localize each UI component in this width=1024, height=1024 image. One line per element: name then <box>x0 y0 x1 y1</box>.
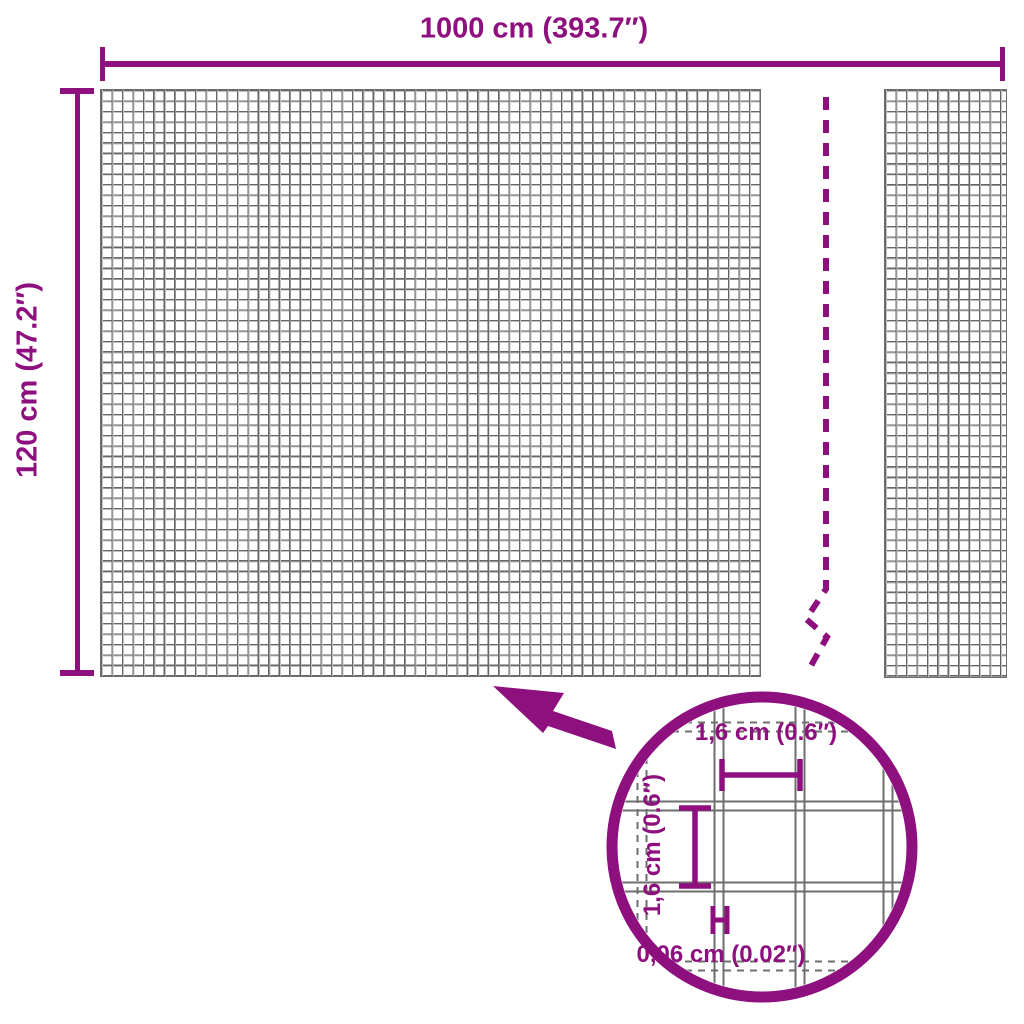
mesh-opening-width-label: 1,6 cm (0.6″) <box>695 719 837 747</box>
diagram-graphics <box>0 0 1024 1024</box>
zoom-arrow-icon <box>493 686 616 749</box>
product-dimension-diagram: 1000 cm (393.7″) 120 cm (47.2″) <box>0 0 1024 1024</box>
mesh-opening-height-label: 1,6 cm (0.6″) <box>639 774 667 916</box>
wire-thickness-label: 0,06 cm (0.02″) <box>637 941 806 969</box>
break-dashed-line <box>806 97 827 673</box>
